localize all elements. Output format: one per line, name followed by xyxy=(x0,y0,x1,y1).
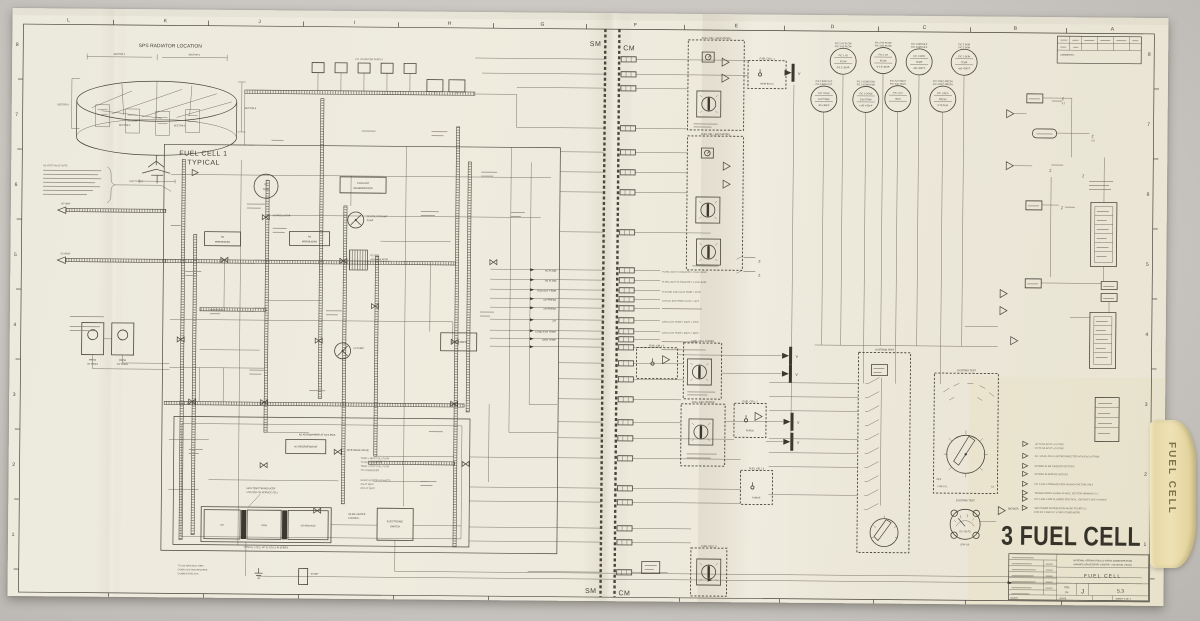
valves xyxy=(176,214,498,515)
meter: F/C 2 H2 FLOW F/C 3 H2 FLOW F/C 1 H2 FLO… xyxy=(830,43,856,74)
label: H2 AND H2O xyxy=(301,525,316,528)
item-value: CM xyxy=(1065,592,1069,594)
n2-regulator-label: N2 REGULATOR xyxy=(273,214,291,217)
drawing-banner-title: 3 FUEL CELL xyxy=(1001,521,1141,552)
sps-radiator-drawing: SPS RADIATOR LOCATION SECTOR 2 SECTOR 3 … xyxy=(57,42,258,184)
label: PRESS xyxy=(939,99,947,101)
size-letter: J xyxy=(1081,588,1084,595)
signal-text: TLM AND CAB LIGHT, TEMP > 475°F xyxy=(662,291,701,294)
electronic-switch: ELECTRONIC SWITCH xyxy=(377,508,413,540)
meter: F/C 2 pH HIGH F/C 3 pH HIGH F/C 1 pH HIG… xyxy=(885,81,911,112)
grid-letter: F xyxy=(634,22,637,28)
label: PREHEATER xyxy=(302,241,317,244)
panel-title: FUEL CELL INDICATORS xyxy=(702,37,731,40)
purge-label: PURGE xyxy=(752,497,761,499)
bus-note: TO CM MAIN BUS THRU xyxy=(178,564,204,567)
label: F/C 2 MODULE xyxy=(911,44,928,46)
grid-number: 1 xyxy=(1144,542,1147,548)
panel-title: FUEL CELL 3 xyxy=(701,545,717,548)
photo-of-schematic: FUEL CELL xyxy=(0,0,1200,621)
signal-label: O2 PRESS xyxy=(544,299,557,302)
signal-label: RAD OUT TEMP xyxy=(537,290,556,293)
grid-number: 8 xyxy=(1148,52,1151,58)
label: +80 +550°F xyxy=(958,68,971,70)
panel-title: FUEL CELL PURGE xyxy=(692,401,715,404)
grid-letter: G xyxy=(540,22,544,28)
grid-number: 8 xyxy=(16,42,19,48)
label: F/C 1 RAD xyxy=(818,92,829,95)
note-item: O2 TO N2 ΔP AT ± 0.5 PSID xyxy=(1035,447,1064,450)
grid-letter: I xyxy=(354,20,355,26)
telelight-column xyxy=(1089,312,1115,368)
signal-label: pH xyxy=(553,320,556,323)
label: TEMP xyxy=(961,62,968,64)
telemetry-meters: F/C 2 H2 FLOW F/C 3 H2 FLOW F/C 1 H2 FLO… xyxy=(808,42,977,384)
grid-number: 5 xyxy=(1146,262,1149,268)
bypass-note: TO CONDENSER xyxy=(361,470,380,472)
signal-label: O2 FLOW xyxy=(545,280,557,283)
telelight-column xyxy=(1090,202,1117,266)
skin-note: LOCATED ON SERVICE CELL xyxy=(246,491,279,494)
meter-units: DC VOLTS xyxy=(959,531,971,533)
h2-pump: H2 PUMP xyxy=(335,343,365,359)
note-item: STORED IN SERVICE MODULE xyxy=(1035,474,1069,476)
n2-tank: N2 TANK N2 REGULATOR xyxy=(254,174,291,217)
grid-number: 7 xyxy=(15,112,18,118)
label: F/C 1 SKIN xyxy=(958,56,970,58)
label: TANK xyxy=(263,188,270,191)
h2-preheater: H2 PREHEATER xyxy=(290,231,330,245)
grid-letter: B xyxy=(1014,26,1018,32)
label: F/C 2 COND EXH xyxy=(857,81,876,83)
purge-label: PURGE xyxy=(746,430,755,432)
signal-text: FLOW LIGHT, FLOW RATE > 0.161 LB/HR xyxy=(662,271,706,274)
label: HIGH xyxy=(895,99,901,101)
atm-note: N2 ATMOSPHERE AT 53.5 PSIA xyxy=(299,433,336,436)
drawing-title: FUEL CELL xyxy=(1084,573,1121,579)
coolant-regenerator: COOLANT REGENERATOR xyxy=(340,177,386,193)
label: GLYCOL xyxy=(370,255,380,257)
radiator-panel-chain: F/C 1 RADIATOR PANELS xyxy=(244,57,517,147)
label: FROM xyxy=(89,360,96,362)
gse-label: GSE POWER xyxy=(129,181,144,183)
sheet-label: SHEET 1 OF 1 xyxy=(1115,599,1131,601)
label: H2 PUMP xyxy=(354,348,365,350)
note-item: H2 TO N2 ΔP AT ± 0.5 PSID xyxy=(1035,443,1064,446)
panel-title: FUEL CELL 1 xyxy=(760,57,776,60)
label: TEMP xyxy=(916,62,923,64)
meter: F/C 2 COND EXH F/C 3 COND EXH F/C 1 COND… xyxy=(853,81,879,112)
label: F/C 3 RAD OUT xyxy=(816,83,833,86)
caution-ref: 5.2 xyxy=(1062,103,1066,105)
meter-range: LOW LVL xyxy=(960,544,971,546)
signal-label: SKIN TEMP xyxy=(542,339,556,342)
label: ACCUMULATOR xyxy=(370,258,388,261)
bus-note: OVERLOAD AND REVERSE xyxy=(178,568,208,571)
grid-number: 3 xyxy=(1145,402,1148,408)
module-subtitle: TYPICAL xyxy=(187,159,220,166)
label: +80 +500°F xyxy=(913,68,926,70)
note-item: STORED IN SM OXIDIZER SECTORS xyxy=(1035,466,1075,468)
signal-label: COND EXH TEMP xyxy=(535,331,556,334)
label: F/C 2 H2 FLOW xyxy=(835,43,852,45)
folder-tab-label: FUEL CELL xyxy=(1166,442,1177,515)
label: FLOW xyxy=(880,61,887,63)
heater-note: OFF AT 390°F xyxy=(360,487,375,490)
sector-label: SECTOR 3 xyxy=(174,125,186,127)
panel-title: FUEL CELL PUMPS xyxy=(691,340,714,343)
grid-number: 4 xyxy=(1145,332,1148,338)
caution-z: Z xyxy=(1091,134,1094,138)
label: O2 TANKS xyxy=(117,363,129,366)
signal-label: H2 FLOW xyxy=(545,270,557,273)
skin-note: SKIN TEMP TRANSDUCER xyxy=(246,487,275,490)
grid-number: 2 xyxy=(1144,472,1147,478)
schematic-drawing: L K J I H G F E D C B A 8 7 6 5 4 3 2 1 … xyxy=(7,8,1168,606)
label: EXH TEMP xyxy=(860,99,872,101)
condenser: CONDENSER xyxy=(441,333,477,351)
grid-number: 4 xyxy=(13,322,16,328)
caution-z: Z xyxy=(1062,97,1065,101)
caution-z: Z xyxy=(1061,206,1064,210)
signal-text: CAB LIGHT, TEMP > 250°F < 175°F xyxy=(662,321,700,324)
h2-regenerator: H2 REGENERATOR xyxy=(286,439,326,453)
label: O2 xyxy=(220,524,224,527)
heater-note: INLINE HEATER 160 WATTS xyxy=(360,479,391,482)
label: F/C 2 pH HIGH xyxy=(890,81,906,83)
label: F/C 2 O2 FLOW xyxy=(875,42,892,44)
signal-text: FLOW LIGHT, FLOW RATE > 1.276 LB/HR xyxy=(662,281,706,284)
agency-line: MANNED SPACECRAFT CENTER · HOUSTON, TEXA… xyxy=(1074,563,1133,567)
label: F/C 1 H2 xyxy=(839,55,849,57)
meter-title: SYSTEMS TEST xyxy=(956,499,975,502)
date-value: 9-6-66 xyxy=(1059,598,1066,600)
label: PREHEATER xyxy=(215,241,230,244)
bus-note: CURRENT RELAYS xyxy=(178,572,199,575)
o2-vent-label: O2 VENT xyxy=(60,253,70,255)
grid-number: 3 xyxy=(13,392,16,398)
note-item: FOR F/C 2 AND F/C 3 CIRCUIT BREAKERS xyxy=(1034,511,1080,514)
label: F/C 3 REG PRESS xyxy=(933,84,953,86)
systems-test-rotary-2 xyxy=(870,515,898,546)
label: 0-0.2 LB/HR xyxy=(837,67,850,69)
label: OUT TEMP xyxy=(818,99,830,101)
cm-label: CM xyxy=(618,590,630,597)
note-item: F/C 2 AND 3 TRANSDUCERS SHOWN ONE TIME O… xyxy=(1034,483,1093,487)
label: F/C 1 pH xyxy=(893,93,903,95)
label: KOH xyxy=(261,524,267,527)
note-item: ALL 3 FUEL CELLS INTERCONNECTED WITH EAC… xyxy=(1035,455,1100,459)
folder-tab[interactable]: FUEL CELL xyxy=(1150,420,1196,568)
revision-block: COMMENTS: xyxy=(1057,36,1141,64)
h2-vent-label: H2 VENT xyxy=(61,203,71,205)
meter: F/C 2 MODULE F/C 3 MODULE F/C 1 MOD TEMP… xyxy=(906,44,932,75)
label: F/C 1 O2 xyxy=(879,55,889,57)
grid-number: 1 xyxy=(12,532,15,538)
label: H2 TANKS xyxy=(87,363,99,366)
section-title: SYSTEMS TEST xyxy=(957,369,976,372)
label: F/C 1 MOD xyxy=(913,56,925,58)
label: COOLANT xyxy=(357,182,370,185)
grid-number: 6 xyxy=(1147,192,1150,198)
label: 0-75 PSIA xyxy=(938,104,949,107)
panel-title: FUEL CELL 3 xyxy=(749,467,765,470)
selector-off: OFF xyxy=(936,479,941,481)
schematic-sheet: L K J I H G F E D C B A 8 7 6 5 4 3 2 1 … xyxy=(7,8,1168,606)
sm-label: SM xyxy=(585,588,597,595)
grid-letter: H xyxy=(448,21,452,27)
label: F/C 2 REG PRESS xyxy=(933,81,953,83)
sector-label: SECTOR 6 xyxy=(245,108,257,110)
grid-letter: K xyxy=(164,18,168,24)
label: CONDENSER xyxy=(451,341,467,344)
grid-number: 5 xyxy=(14,252,17,258)
caution-z: Z xyxy=(1082,174,1085,178)
signal-text: CAB LIGHT, TEMP > 500°F < 360°F xyxy=(662,332,700,335)
label: -50 +300°F xyxy=(818,105,830,107)
grid-letter: A xyxy=(1111,27,1115,33)
bypass-note: TO REGENERATOR xyxy=(361,461,383,464)
agency-line: NATIONAL AERONAUTICS & SPACE ADMINISTRAT… xyxy=(1073,559,1132,563)
heater-note: ON AT 385°F xyxy=(360,483,374,486)
label: GLYCOL COOLANT xyxy=(367,215,388,218)
cell-stack: O2 KOH H2 AND H2O TYPICAL 1 CELL OF 31 C… xyxy=(201,507,331,550)
main-bus-label: MAIN BUS A xyxy=(760,82,774,85)
scale-label: SCALE xyxy=(1010,597,1018,600)
grid-number: 7 xyxy=(1147,122,1150,128)
panel-title: FUEL CELL 2 xyxy=(649,345,665,348)
label: F/C 1 COND xyxy=(859,93,872,95)
label: F/C 3 MODULE xyxy=(911,47,928,49)
heater-control: CONTROL xyxy=(348,518,360,520)
label: 0-1.6 LB/HR xyxy=(877,67,890,69)
label: F/C 3 pH HIGH xyxy=(890,84,906,86)
label: PUMP xyxy=(367,220,374,222)
meter: F/C 2 SKIN F/C 3 SKIN F/C 1 SKIN TEMP +8… xyxy=(951,44,977,75)
caution-z: Z xyxy=(1049,169,1052,173)
chain-label: F/C 1 RADIATOR PANELS xyxy=(355,58,383,61)
panel-title: FUEL CELL INDICATORS xyxy=(701,133,730,136)
grid-letter: J xyxy=(258,19,261,25)
label: F/C 3 SKIN xyxy=(958,47,970,49)
label: F/C 3 H2 FLOW xyxy=(835,46,852,48)
signal-label: H2 PRESS xyxy=(544,308,557,311)
label: H2 xyxy=(308,236,312,239)
module-title: FUEL CELL 1 xyxy=(179,150,227,157)
overboard-vents: H2 VENT O2 VENT xyxy=(57,203,71,263)
cm-label: CM xyxy=(623,45,635,52)
label: FLOW xyxy=(840,61,847,63)
label: F/C 1 REG xyxy=(937,93,948,95)
label: N2 xyxy=(221,236,225,239)
label: F/C 3 O2 FLOW xyxy=(875,45,892,47)
meter: F/C 2 REG PRESS F/C 3 REG PRESS F/C 1 RE… xyxy=(930,81,956,112)
grid-letter: C xyxy=(923,25,927,31)
n2-preheater: N2 PREHEATER xyxy=(205,232,241,246)
comments-label: COMMENTS: xyxy=(1060,55,1074,57)
label: F/C 3 COND EXH xyxy=(857,84,876,86)
drawing-number: 5.3 xyxy=(1117,589,1124,595)
note-item: TRANSDUCERS SHOWN IN MISC. SECTION DRAWI… xyxy=(1034,492,1098,496)
caution-ref: 5.2 xyxy=(1091,140,1095,142)
label: FROM xyxy=(119,360,126,362)
meter: F/C 2 O2 FLOW F/C 3 O2 FLOW F/C 1 O2 FLO… xyxy=(870,42,896,73)
item-label: ITEM xyxy=(1064,587,1070,589)
bypass-note: TEMP < 470°F FULL FLOW xyxy=(361,465,390,468)
note-title: N2 VENT VALVE NOTE xyxy=(43,164,68,167)
radiator-title: SPS RADIATOR LOCATION xyxy=(139,43,203,50)
glycol-accumulator: GLYCOL ACCUMULATOR xyxy=(349,250,388,270)
label: F/C 2 SKIN xyxy=(958,44,970,46)
sector-label: SECTOR 3 xyxy=(188,55,200,57)
label: REGENERATOR xyxy=(353,187,372,190)
grid-number: 6 xyxy=(15,182,18,188)
bypass-note: TEMP > 485°F FULL FLOW xyxy=(361,457,390,460)
label: SWITCH xyxy=(390,525,400,528)
grid-letter: D xyxy=(831,24,835,30)
shunt-label: SHUNT xyxy=(311,574,320,576)
selector-low: LOW LVL xyxy=(937,486,948,488)
sm-label: SM xyxy=(590,41,602,48)
label: ELECTRONIC xyxy=(387,520,403,523)
label: F/C 2 RAD OUT xyxy=(816,80,833,83)
sector-label: SECTOR 2 xyxy=(119,125,131,127)
grid-letter: L xyxy=(67,17,70,23)
section-title: SYSTEMS TEST xyxy=(875,349,894,352)
bypass-label: N2 BYPASS VALVE xyxy=(347,449,369,452)
glycol-pump: GLYCOL COOLANT PUMP xyxy=(348,212,389,228)
notes-label: NOTES: xyxy=(1008,507,1019,511)
panel-title: FUEL CELL 2 xyxy=(743,400,759,403)
grid-number: 2 xyxy=(12,462,15,468)
sector-label: SECTOR 2 xyxy=(113,54,125,56)
caption: TYPICAL 1 CELL OF 31 CELLS IN SERIES xyxy=(244,546,289,549)
signal-text: GLYCOL RAD TEMP LIGHT < -30°F xyxy=(662,300,700,303)
sector-label: SECTOR 5 xyxy=(57,104,69,106)
label: +145 +250°F xyxy=(859,105,873,107)
heater-control: INLINE HEATER xyxy=(348,513,366,516)
label: H2 REGENERATOR xyxy=(294,445,317,448)
